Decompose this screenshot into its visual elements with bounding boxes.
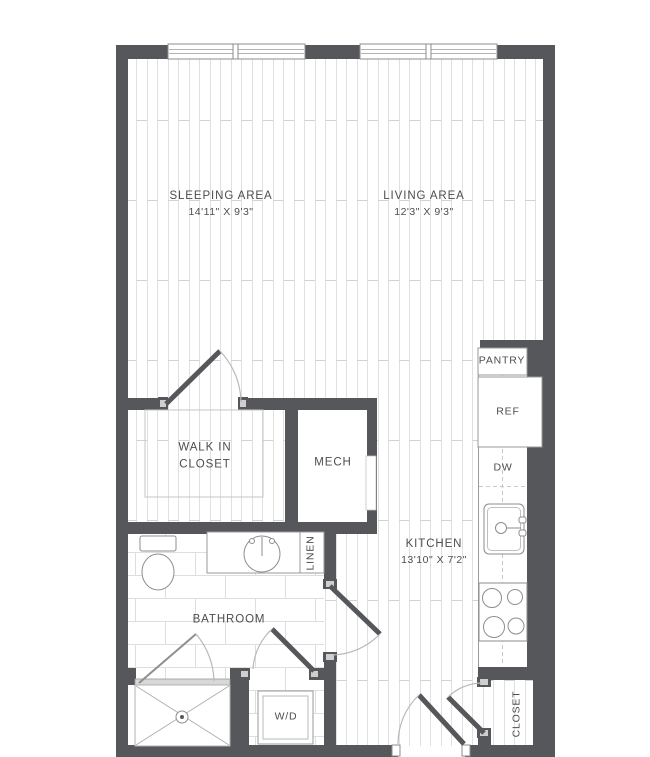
wall-bottom-left [116,745,398,757]
sleeping-area-dimensions: 14'11" X 9'3" [169,205,272,220]
label-ref: REF [496,404,519,419]
stove [479,583,527,641]
shower-threshold [135,679,230,685]
room-label-living-area: LIVING AREA 12'3" X 9'3" [383,188,464,220]
wall-wic-mech-divider [285,410,298,522]
wall-left-jut [125,668,136,685]
wall-bottom-right [465,745,555,757]
dw-name: DW [493,460,512,475]
wall-shower-wd-divider [230,668,249,757]
mech-door-recess [366,456,376,510]
wall-bathroom-right-upper [324,534,336,584]
kitchen-sink [484,504,526,554]
room-label-mech: MECH [314,455,351,472]
room-label-bathroom: BATHROOM [193,612,266,629]
living-area-dimensions: 12'3" X 9'3" [383,205,464,220]
closet-name: CLOSET [509,691,524,738]
kitchen-name: KITCHEN [401,536,467,553]
room-label-walk-in-closet: WALK IN CLOSET [178,439,231,472]
room-label-closet: CLOSET [509,691,524,738]
room-label-linen: LINEN [303,536,318,571]
living-area-name: LIVING AREA [383,188,464,205]
toilet-bowl [142,554,174,590]
wall-wic-left [116,398,160,410]
kitchen-dimensions: 13'10" X 7'2" [401,553,467,568]
floorplan-canvas: SLEEPING AREA 14'11" X 9'3" LIVING AREA … [0,0,650,757]
ref-name: REF [496,404,519,419]
label-wd: W/D [275,709,298,724]
toilet-tank [140,536,176,551]
wall-wic-right [247,398,377,410]
sink-faucet [496,523,507,534]
shower [135,679,230,746]
room-label-kitchen: KITCHEN 13'10" X 7'2" [401,536,467,568]
mech-name: MECH [314,455,351,472]
wall-right [543,45,555,757]
sink-knob-top [519,517,526,523]
floorplan-drawing [0,0,650,757]
window-left [168,44,305,59]
shower-drain-center [180,715,184,719]
wic-name-line1: WALK IN [178,439,231,456]
label-pantry: PANTRY [479,353,525,368]
window-right [360,44,497,59]
wall-top-middle [305,45,360,59]
bathroom-name: BATHROOM [193,612,266,629]
sink-knob-bottom [519,530,526,536]
vanity-faucet-handle-left [250,539,255,544]
vanity-faucet-handle-right [270,539,275,544]
entry-door-jambs [392,745,470,756]
pantry-name: PANTRY [479,353,525,368]
wic-name-line2: CLOSET [178,456,231,473]
label-dw: DW [493,460,512,475]
room-label-sleeping-area: SLEEPING AREA 14'11" X 9'3" [169,188,272,220]
wall-kitchen-top-jut [480,340,543,348]
sleeping-area-name: SLEEPING AREA [169,188,272,205]
linen-name: LINEN [303,536,318,571]
wd-name: W/D [275,709,298,724]
